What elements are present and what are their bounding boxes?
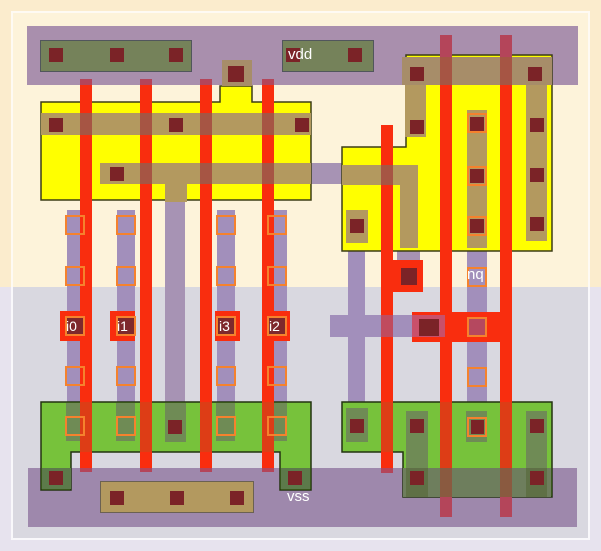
poly-gate-c-tip (500, 497, 512, 517)
poly-gate-i2-tip (262, 468, 274, 472)
contact (530, 419, 544, 433)
poly-gate-c-rail (500, 35, 512, 57)
contact (228, 66, 244, 82)
poly-gate-i1-rail (140, 79, 152, 85)
contact (410, 471, 424, 485)
contact (288, 471, 302, 485)
poly-gate-b-diff (440, 402, 452, 468)
poly-gate-b-li (440, 57, 452, 85)
poly-gate-i3-tip (200, 468, 212, 472)
poly-gate-i1-diff (140, 402, 152, 452)
contact (230, 491, 244, 505)
via (116, 416, 136, 436)
poly-gate-i3-li2 (200, 163, 212, 184)
poly-gate-i3-diff (200, 402, 212, 452)
via (267, 416, 287, 436)
poly-gate-i0-li (80, 113, 92, 135)
poly-gate-c-li (500, 57, 512, 85)
via (467, 113, 487, 133)
via (116, 215, 136, 235)
layout-canvas[interactable]: vdd vss nq i0 i1 i3 i2 (0, 0, 601, 551)
pin-label-i1[interactable]: i1 (117, 318, 128, 334)
via (467, 367, 487, 387)
contact (410, 120, 424, 134)
contact (530, 118, 544, 132)
contact (110, 48, 124, 62)
poly-gate-c-diff (500, 402, 512, 468)
via (116, 366, 136, 386)
pin-label-nq[interactable]: nq (467, 266, 484, 284)
li-stub-mid (165, 184, 187, 202)
via (216, 416, 236, 436)
poly-gate-b-rail (440, 35, 452, 57)
via (65, 416, 85, 436)
via (216, 366, 236, 386)
poly-gate-i2-li (262, 113, 274, 135)
contact (168, 420, 182, 434)
pin-label-i0[interactable]: i0 (66, 318, 77, 334)
poly-gate-c-olive (500, 468, 512, 497)
contact (49, 118, 63, 132)
poly-gate-i2-rail (262, 79, 274, 85)
contact (295, 118, 309, 132)
poly-gate-b-tip (440, 497, 452, 517)
contact (110, 167, 124, 181)
poly-gate-i2-li2 (262, 163, 274, 184)
via (116, 266, 136, 286)
li-band-down (400, 185, 418, 248)
contact (410, 419, 424, 433)
via (65, 366, 85, 386)
contact (350, 219, 364, 233)
poly-gate-a-diff (381, 402, 393, 452)
poly-gate-i1-li (140, 113, 152, 135)
via (467, 166, 487, 186)
contact (169, 118, 183, 132)
poly-gate-i1-tip (140, 468, 152, 472)
contact (530, 217, 544, 231)
contact (110, 491, 124, 505)
contact (49, 48, 63, 62)
poly-gate-i0-tip (80, 468, 92, 472)
contact (49, 471, 63, 485)
contact (170, 491, 184, 505)
via (467, 216, 487, 236)
li-band (342, 165, 418, 185)
contact (530, 471, 544, 485)
poly-gate-a-tip (381, 468, 393, 473)
via (267, 215, 287, 235)
poly-gate-i3-rail (200, 79, 212, 85)
pin-label-vdd[interactable]: vdd (288, 46, 312, 64)
via (267, 266, 287, 286)
pin-label-i3[interactable]: i3 (219, 318, 230, 334)
via (467, 417, 487, 437)
poly-gate-i1-li2 (140, 163, 152, 184)
contact (169, 48, 183, 62)
poly-gate-a-li (381, 165, 393, 185)
via (65, 215, 85, 235)
contact (348, 48, 362, 62)
via (216, 266, 236, 286)
contact (410, 67, 424, 81)
pin-label-i2[interactable]: i2 (269, 318, 280, 334)
poly-gate-a-band (381, 315, 393, 337)
via (467, 317, 487, 337)
contact (419, 319, 439, 336)
via (267, 366, 287, 386)
via (216, 215, 236, 235)
poly-gate-b-olive (440, 468, 452, 497)
via (65, 266, 85, 286)
poly-gate-i0-rail (80, 79, 92, 85)
pin-label-vss[interactable]: vss (287, 488, 310, 506)
poly-gate-i3-li (200, 113, 212, 135)
contact (401, 268, 417, 285)
contact (350, 419, 364, 433)
contact (530, 168, 544, 182)
contact (528, 67, 542, 81)
